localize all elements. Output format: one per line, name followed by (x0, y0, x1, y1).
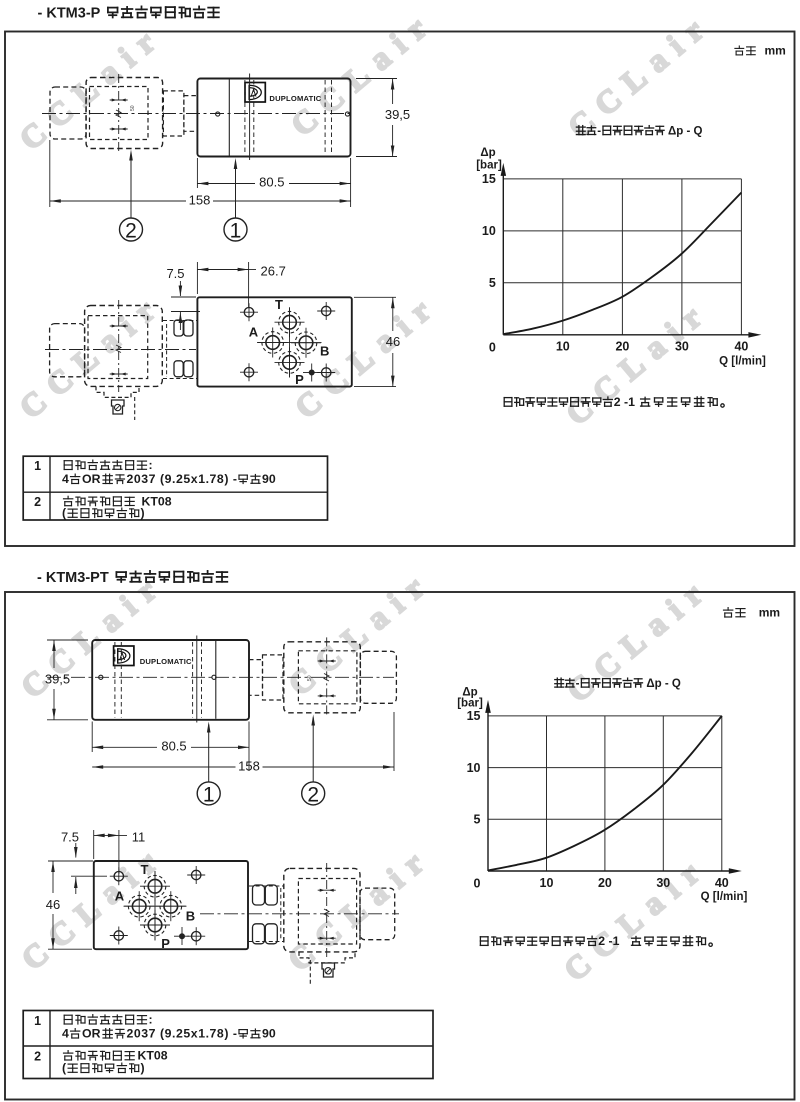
svg-text:2037 (9.25x1.78) -: 2037 (9.25x1.78) - (127, 1027, 238, 1041)
svg-text:Q [l/min]: Q [l/min] (701, 891, 748, 903)
svg-text:CCLair: CCLair (557, 847, 715, 987)
svg-text:1: 1 (34, 459, 41, 473)
svg-text:(: ( (62, 1061, 67, 1075)
svg-text::: : (149, 1013, 153, 1027)
svg-text:-: - (597, 125, 601, 137)
svg-text:158: 158 (238, 758, 260, 773)
svg-text:DUPLOMATIC: DUPLOMATIC (269, 94, 321, 103)
svg-text:- KTM3-P: - KTM3-P (38, 6, 101, 22)
svg-text:90: 90 (262, 1027, 276, 1041)
svg-text:39,5: 39,5 (45, 672, 70, 687)
svg-text::: : (149, 458, 153, 472)
svg-text:90: 90 (262, 472, 276, 486)
svg-text:158: 158 (189, 192, 211, 207)
svg-text:2: 2 (34, 495, 41, 509)
svg-text:26.7: 26.7 (261, 264, 286, 279)
svg-text:20: 20 (615, 340, 629, 354)
svg-text:Δp: Δp (480, 147, 495, 159)
svg-text:1: 1 (34, 1014, 41, 1028)
svg-text:P: P (161, 936, 170, 951)
svg-text:39,5: 39,5 (385, 107, 410, 122)
svg-text:15: 15 (482, 172, 496, 186)
svg-text:OR: OR (82, 472, 101, 486)
svg-text:10: 10 (482, 224, 496, 238)
svg-text:): ) (141, 1061, 145, 1075)
svg-text:-: - (576, 678, 580, 690)
svg-text:46: 46 (386, 334, 400, 349)
svg-text:2 -1: 2 -1 (598, 934, 619, 948)
svg-text:Δp - Q: Δp - Q (668, 125, 703, 137)
svg-text:1: 1 (230, 219, 242, 242)
svg-text:20: 20 (598, 876, 612, 890)
svg-text:T: T (275, 297, 283, 312)
svg-text:): ) (141, 506, 145, 520)
svg-text:15: 15 (467, 709, 481, 723)
svg-text:OR: OR (82, 1027, 101, 1041)
svg-text:2: 2 (125, 219, 137, 242)
svg-text:10: 10 (540, 876, 554, 890)
svg-text:2: 2 (307, 783, 319, 806)
svg-text:0: 0 (474, 877, 481, 891)
svg-text:5: 5 (489, 276, 496, 290)
svg-text:(: ( (62, 506, 67, 520)
svg-text:46: 46 (46, 897, 60, 912)
svg-text:- KTM3-PT: - KTM3-PT (37, 570, 109, 586)
svg-text:80.5: 80.5 (259, 175, 284, 190)
svg-text:30: 30 (656, 876, 670, 890)
svg-text:KT08: KT08 (142, 494, 172, 508)
svg-text:30: 30 (675, 340, 689, 354)
svg-text:2037 (9.25x1.78) -: 2037 (9.25x1.78) - (127, 472, 238, 486)
svg-text:2: 2 (34, 1049, 41, 1063)
svg-text:CCLair: CCLair (559, 291, 717, 431)
svg-text:10: 10 (556, 340, 570, 354)
svg-text:50: 50 (307, 675, 313, 681)
svg-text:DUPLOMATIC: DUPLOMATIC (140, 657, 192, 666)
svg-text:Q [l/min]: Q [l/min] (719, 356, 766, 368)
svg-text:0: 0 (489, 340, 496, 354)
svg-text:40: 40 (734, 340, 748, 354)
svg-text:7.5: 7.5 (166, 266, 184, 281)
svg-text:4: 4 (62, 472, 69, 486)
svg-text:A: A (115, 889, 125, 904)
svg-text:P: P (295, 372, 304, 387)
svg-text:CCLair: CCLair (284, 2, 442, 142)
svg-text:1: 1 (203, 783, 215, 806)
svg-text:mm: mm (759, 606, 780, 620)
svg-text:CCLair: CCLair (560, 568, 718, 708)
svg-text:[bar]: [bar] (476, 160, 502, 172)
svg-text:T: T (141, 862, 149, 877)
svg-text:A: A (249, 325, 259, 340)
svg-text:CCLair: CCLair (288, 285, 446, 425)
svg-text:50: 50 (130, 105, 136, 111)
svg-text:40: 40 (715, 876, 729, 890)
svg-text:11: 11 (132, 830, 146, 845)
svg-text:80.5: 80.5 (161, 739, 186, 754)
svg-text:mm: mm (765, 44, 786, 58)
svg-text:4: 4 (62, 1027, 69, 1041)
svg-text:Δp - Q: Δp - Q (646, 678, 681, 690)
svg-text:10: 10 (467, 761, 481, 775)
svg-text:[bar]: [bar] (457, 698, 483, 710)
svg-text:B: B (320, 344, 329, 359)
svg-text:7.5: 7.5 (61, 830, 79, 845)
svg-text:B: B (186, 909, 195, 924)
svg-text:2 -1: 2 -1 (614, 395, 635, 409)
svg-text:CCLair: CCLair (561, 4, 719, 144)
svg-text:5: 5 (474, 813, 481, 827)
